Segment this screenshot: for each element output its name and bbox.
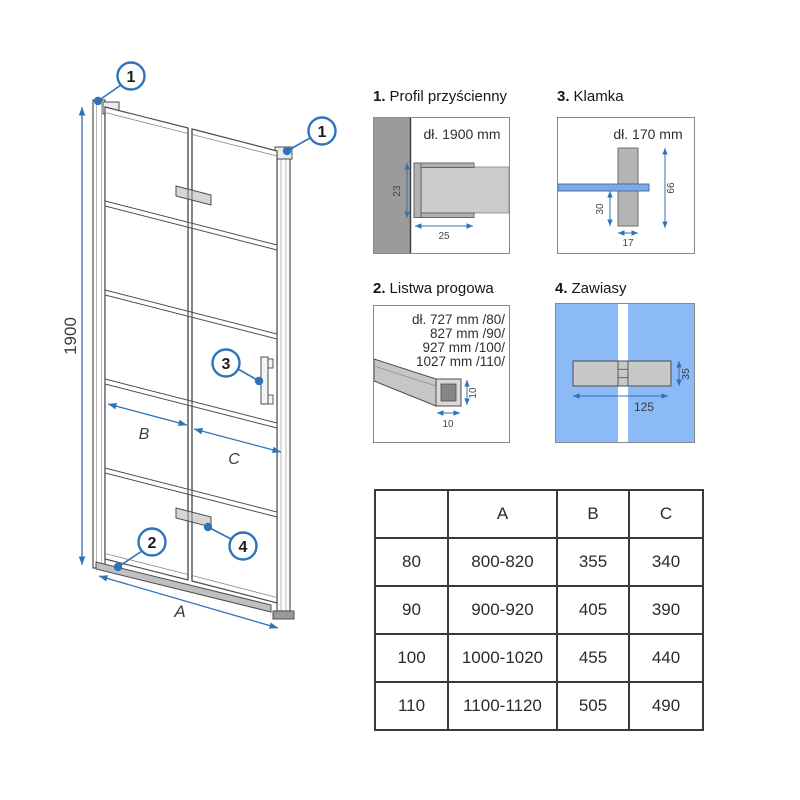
dim-threshold-height: 10	[467, 380, 479, 405]
cell-b: 355	[557, 538, 629, 586]
callout-dot	[94, 97, 102, 105]
dim-25-label: 25	[438, 231, 450, 242]
cell-c: 440	[629, 634, 703, 682]
detail-name: Listwa progowa	[390, 280, 494, 297]
size-table-header-row: A B C	[375, 490, 703, 538]
size-table-row-90: 90 900-920 405 390	[375, 586, 703, 634]
cell-a: 900-920	[448, 586, 557, 634]
dim-a-label: A	[173, 602, 185, 621]
profile-length-label: dł. 1900 mm	[423, 126, 500, 142]
callout-dot	[283, 147, 291, 155]
threshold-drawing: dł. 727 mm /80/ 827 mm /90/ 927 mm /100/…	[374, 306, 509, 442]
detail-number: 2.	[373, 280, 386, 297]
detail-drawing-box: dł. 727 mm /80/ 827 mm /90/ 927 mm /100/…	[373, 305, 510, 443]
detail-number: 1.	[373, 88, 386, 105]
callout-wall-profile-left: 1	[94, 63, 145, 106]
header-cell-c: C	[629, 490, 703, 538]
cell-a: 800-820	[448, 538, 557, 586]
dim-30-label: 30	[595, 203, 606, 215]
dim-c-label: C	[228, 451, 240, 468]
dim-35-label: 35	[680, 368, 692, 380]
cell-b: 455	[557, 634, 629, 682]
door-glass-panels	[105, 107, 277, 603]
dim-b-label: B	[139, 426, 150, 443]
shower-door-spec-sheet: { "colors": { "accent_blue": "#2e73b8", …	[0, 0, 800, 800]
length-option-100: 927 mm /100/	[422, 340, 505, 355]
detail-panel-title: 3.Klamka	[557, 88, 695, 106]
cell-c: 340	[629, 538, 703, 586]
dim-handle-offset: 30	[595, 191, 610, 226]
detail-panel-hinges: 4.Zawiasy 125 35	[555, 280, 695, 443]
callout-wall-profile-right: 1	[283, 118, 336, 156]
dim-handle-height: 66	[665, 148, 677, 228]
detail-drawing-box: 125 35	[555, 303, 695, 443]
hinge-bar-section	[573, 361, 671, 386]
callout-dot	[204, 523, 212, 531]
dimension-height: 1900	[61, 107, 82, 565]
dim-threshold-width: 10	[437, 413, 460, 430]
glass-pane-section	[421, 167, 509, 213]
header-cell-b: B	[557, 490, 629, 538]
wall-profile-drawing: dł. 1900 mm 23 25	[374, 118, 509, 253]
detail-name: Klamka	[574, 88, 624, 105]
callout-dot	[114, 563, 122, 571]
detail-number: 3.	[557, 88, 570, 105]
cell-b: 405	[557, 586, 629, 634]
cell-c: 390	[629, 586, 703, 634]
cell-size: 90	[375, 586, 448, 634]
size-table-row-100: 100 1000-1020 455 440	[375, 634, 703, 682]
detail-name: Profil przyścienny	[390, 88, 508, 105]
detail-name: Zawiasy	[572, 280, 627, 297]
detail-panel-threshold: 2.Listwa progowa dł. 727 mm /80/ 827 mm …	[373, 280, 510, 443]
header-cell-size	[375, 490, 448, 538]
detail-drawing-box: dł. 170 mm 66 30 17	[557, 117, 695, 254]
dim-125-label: 125	[634, 400, 654, 414]
detail-panel-title: 4.Zawiasy	[555, 280, 695, 298]
size-table: A B C 80 800-820 355 340 90 900-920 405 …	[374, 489, 704, 731]
header-cell-a: A	[448, 490, 557, 538]
handle-length-label: dł. 170 mm	[613, 126, 682, 142]
callout-dot	[255, 377, 263, 385]
callout-number: 4	[239, 539, 248, 556]
glass-pane-section	[558, 184, 649, 191]
size-table-row-110: 110 1100-1120 505 490	[375, 682, 703, 730]
detail-panel-wall-profile: 1.Profil przyścienny dł. 1900 mm 23	[373, 88, 510, 254]
threshold-length-labels: dł. 727 mm /80/ 827 mm /90/ 927 mm /100/…	[412, 312, 505, 369]
dim-23-label: 23	[392, 185, 403, 197]
length-option-110: 1027 mm /110/	[416, 354, 505, 369]
size-table-row-80: 80 800-820 355 340	[375, 538, 703, 586]
cell-a: 1000-1020	[448, 634, 557, 682]
detail-panel-handle: 3.Klamka dł. 170 mm 66 30 17	[557, 88, 695, 254]
detail-panel-title: 1.Profil przyścienny	[373, 88, 510, 106]
length-option-80: dł. 727 mm /80/	[412, 312, 505, 327]
callout-number: 3	[222, 356, 231, 373]
cell-b: 505	[557, 682, 629, 730]
dim-handle-width: 17	[618, 233, 638, 249]
dim-profile-width: 25	[415, 226, 473, 242]
detail-number: 4.	[555, 280, 568, 297]
cell-size: 80	[375, 538, 448, 586]
cell-size: 100	[375, 634, 448, 682]
callout-number: 1	[318, 124, 327, 141]
dim-66-label: 66	[666, 182, 677, 194]
cell-size: 110	[375, 682, 448, 730]
dim-10h-label: 10	[442, 419, 454, 430]
callout-number: 2	[148, 535, 157, 552]
cell-c: 490	[629, 682, 703, 730]
dim-17-label: 17	[622, 238, 634, 249]
dim-10v-label: 10	[468, 387, 479, 399]
dim-height-label: 1900	[61, 317, 80, 355]
cell-a: 1100-1120	[448, 682, 557, 730]
length-option-90: 827 mm /90/	[430, 326, 505, 341]
callout-number: 1	[127, 69, 136, 86]
detail-drawing-box: dł. 1900 mm 23 25	[373, 117, 510, 254]
detail-panel-title: 2.Listwa progowa	[373, 280, 510, 298]
hinge-drawing: 125 35	[556, 304, 694, 442]
handle-drawing: dł. 170 mm 66 30 17	[558, 118, 694, 253]
